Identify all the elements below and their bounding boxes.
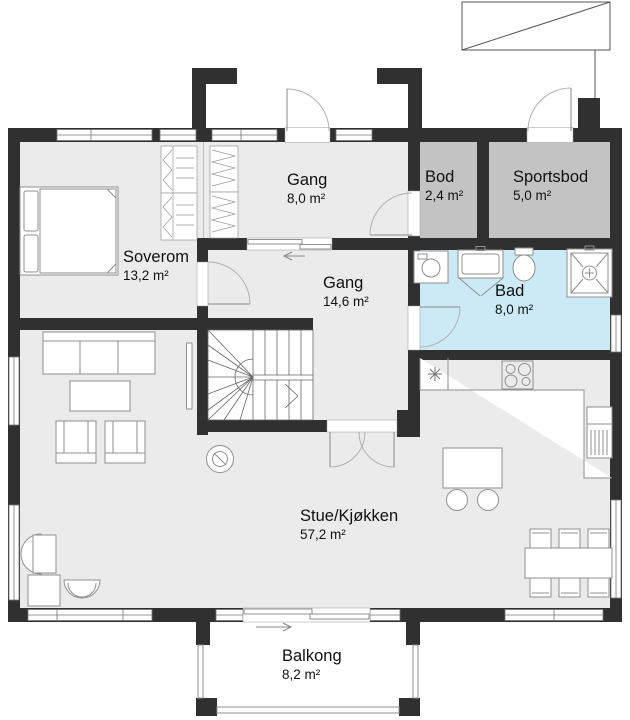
window-icon <box>336 130 372 141</box>
window-icon <box>9 357 19 425</box>
external-stair-icon <box>462 2 610 98</box>
entry-door-opening <box>285 128 330 143</box>
porch-wall-left-cap <box>192 68 237 84</box>
room-label-gang-entre: Gang 8,0 m² <box>287 171 327 206</box>
room-label-balkong: Balkong 8,2 m² <box>282 647 342 682</box>
coffee-table-icon <box>70 381 130 411</box>
window-icon <box>28 610 152 621</box>
dining-chair-icon <box>588 529 609 548</box>
window-icon <box>370 610 400 621</box>
door-swing-icon <box>287 89 329 131</box>
fridge-icon <box>587 407 612 458</box>
window-icon <box>216 610 243 621</box>
balcony-post-bl <box>196 698 217 716</box>
wood-stove-icon <box>207 446 234 473</box>
porch-wall-right-cap <box>377 68 422 84</box>
balcony-post-tr <box>406 622 420 645</box>
balcony-post-br <box>399 698 420 716</box>
window-icon <box>57 130 152 141</box>
dining-set <box>525 529 612 597</box>
freezer-asterisk-icon <box>428 367 442 381</box>
floor-plan-svg <box>0 0 630 720</box>
armchair-icon <box>56 421 96 463</box>
floor-plan-page: Soverom 13,2 m² Gang 8,0 m² Bod 2,4 m² S… <box>0 0 630 720</box>
room-label-sportsbod: Sportsbod 5,0 m² <box>513 168 588 203</box>
window-icon <box>160 130 196 141</box>
room-label-stue-kjokken: Stue/Kjøkken 57,2 m² <box>300 507 398 542</box>
wardrobe-icon <box>161 193 197 240</box>
dining-chair-icon <box>559 529 580 548</box>
wardrobe-icon <box>161 146 197 193</box>
armchair-icon <box>105 421 145 463</box>
bar-stool-icon <box>447 490 468 511</box>
bar-stool-icon <box>478 490 499 511</box>
closet-zigzag-icon <box>210 192 238 238</box>
sofa-icon <box>43 332 155 374</box>
room-label-gang-midt: Gang 14,6 m² <box>323 274 369 309</box>
door-swing-icon <box>528 88 571 131</box>
closet-zigzag-icon <box>210 146 238 192</box>
bad-door-opening <box>408 306 420 350</box>
washing-machine-icon <box>414 251 448 283</box>
sportsbod-door-opening <box>527 128 573 143</box>
room-label-bod: Bod 2,4 m² <box>425 168 463 203</box>
winder-stair-icon <box>208 330 313 420</box>
room-label-soverom: Soverom 13,2 m² <box>123 248 189 283</box>
window-icon <box>611 315 621 352</box>
bod-door-opening <box>408 191 420 236</box>
double-bed-icon <box>20 187 118 275</box>
window-icon <box>9 505 19 600</box>
soverom-door-opening <box>197 262 208 306</box>
exterior-post <box>578 98 600 128</box>
window-icon <box>212 130 277 141</box>
direction-arrow-icon <box>256 623 291 631</box>
toilet-icon <box>513 248 535 281</box>
dining-chair-icon <box>530 578 551 597</box>
window-icon <box>505 610 603 621</box>
tv-icon <box>187 343 193 409</box>
dining-chair-icon <box>530 529 551 548</box>
dining-chair-icon <box>588 578 609 597</box>
dining-table-icon <box>525 548 612 578</box>
room-label-bad: Bad 8,0 m² <box>495 282 533 317</box>
balcony-post-tl <box>196 622 210 645</box>
shower-icon <box>567 246 612 297</box>
stue-double-door-opening <box>327 420 397 432</box>
dining-chair-icon <box>559 578 580 597</box>
